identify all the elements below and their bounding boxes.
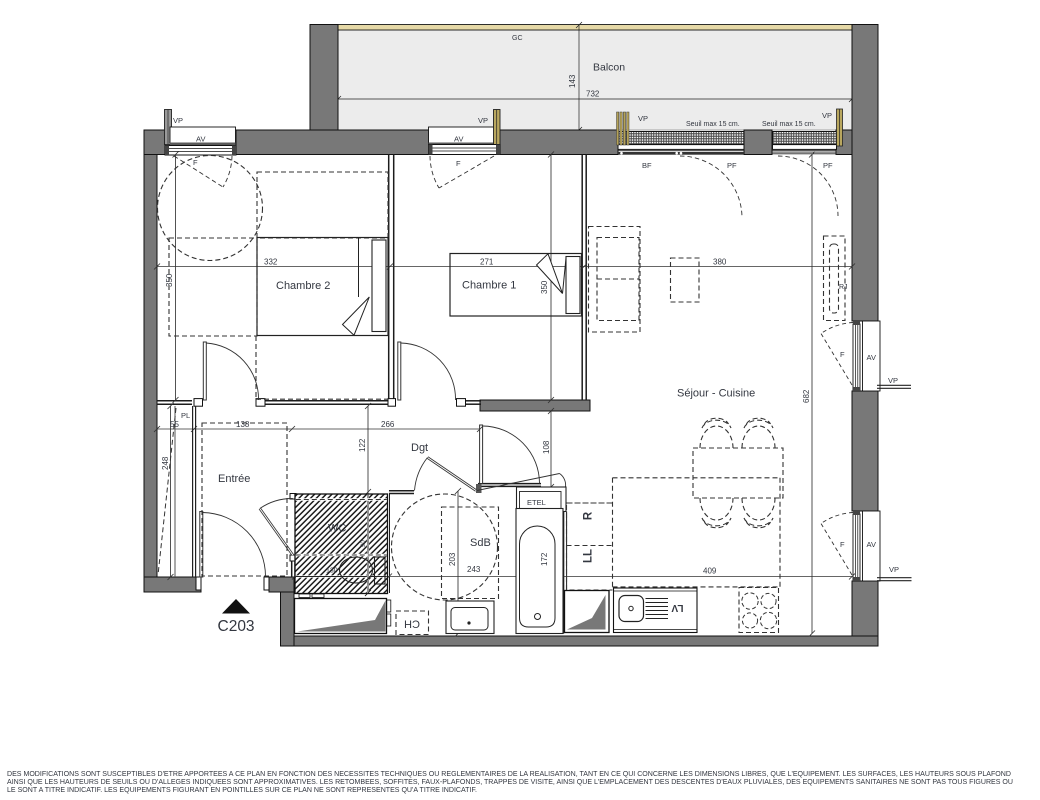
svg-text:PF: PF [823,161,833,170]
svg-text:122: 122 [358,438,367,452]
svg-text:Seuil max 15 cm.: Seuil max 15 cm. [762,121,816,128]
svg-text:138: 138 [236,420,250,429]
svg-text:172: 172 [540,552,549,566]
svg-text:VP: VP [888,376,898,385]
svg-text:332: 332 [264,258,278,267]
svg-text:682: 682 [802,389,811,403]
svg-text:55: 55 [170,420,179,429]
svg-text:DES MODIFICATIONS SONT SUSCEPT: DES MODIFICATIONS SONT SUSCEPTIBLES D'ET… [7,771,1011,778]
svg-text:409: 409 [703,567,717,576]
svg-text:AV: AV [867,540,876,549]
svg-text:Chambre 1: Chambre 1 [462,280,516,292]
svg-text:350: 350 [540,280,549,294]
svg-text:Dgt: Dgt [411,442,428,454]
svg-text:F: F [193,158,198,167]
svg-text:ETEL: ETEL [527,498,546,507]
svg-text:LV: LV [671,602,683,613]
svg-text:F: F [840,540,845,549]
svg-text:130: 130 [326,568,338,575]
svg-text:VP: VP [638,114,648,123]
svg-text:GC: GC [512,35,523,42]
svg-text:203: 203 [448,552,457,566]
svg-text:VP: VP [173,116,183,125]
svg-text:RJ: RJ [839,284,848,291]
svg-text:Entrée: Entrée [218,473,250,485]
svg-text:266: 266 [381,420,395,429]
svg-text:C203: C203 [218,618,255,635]
svg-text:90: 90 [361,540,367,547]
svg-text:AINSI QUE LES HAUTEURS DE SEUI: AINSI QUE LES HAUTEURS DE SEUILS OU D'AL… [7,779,1013,786]
svg-text:AV: AV [196,135,205,144]
svg-text:SdB: SdB [470,537,491,549]
svg-text:Balcon: Balcon [593,62,625,74]
svg-text:143: 143 [568,74,577,88]
svg-text:108: 108 [542,440,551,454]
svg-text:248: 248 [161,456,170,470]
svg-text:Séjour - Cuisine: Séjour - Cuisine [677,388,755,400]
svg-text:LE SONT A TITRE INDICATIF. LES: LE SONT A TITRE INDICATIF. LES EQUIPEMEN… [7,787,477,794]
svg-text:243: 243 [467,565,481,574]
svg-text:F: F [840,350,845,359]
svg-text:Chambre 2: Chambre 2 [276,280,330,292]
svg-text:AV: AV [454,135,463,144]
svg-text:732: 732 [586,90,600,99]
svg-text:380: 380 [713,258,727,267]
svg-text:VP: VP [478,116,488,125]
svg-text:VP: VP [822,111,832,120]
svg-text:350: 350 [165,273,174,287]
svg-text:F: F [456,159,461,168]
svg-text:R: R [583,511,595,520]
svg-text:BF: BF [642,161,652,170]
svg-text:271: 271 [480,258,494,267]
svg-text:WC: WC [328,523,346,535]
svg-text:AV: AV [867,353,876,362]
svg-text:Seuil max 15 cm.: Seuil max 15 cm. [686,121,740,128]
svg-text:PF: PF [727,161,737,170]
svg-text:CH: CH [404,618,420,630]
svg-text:LL: LL [583,549,595,563]
svg-text:VP: VP [889,565,899,574]
svg-text:PL: PL [181,411,190,420]
